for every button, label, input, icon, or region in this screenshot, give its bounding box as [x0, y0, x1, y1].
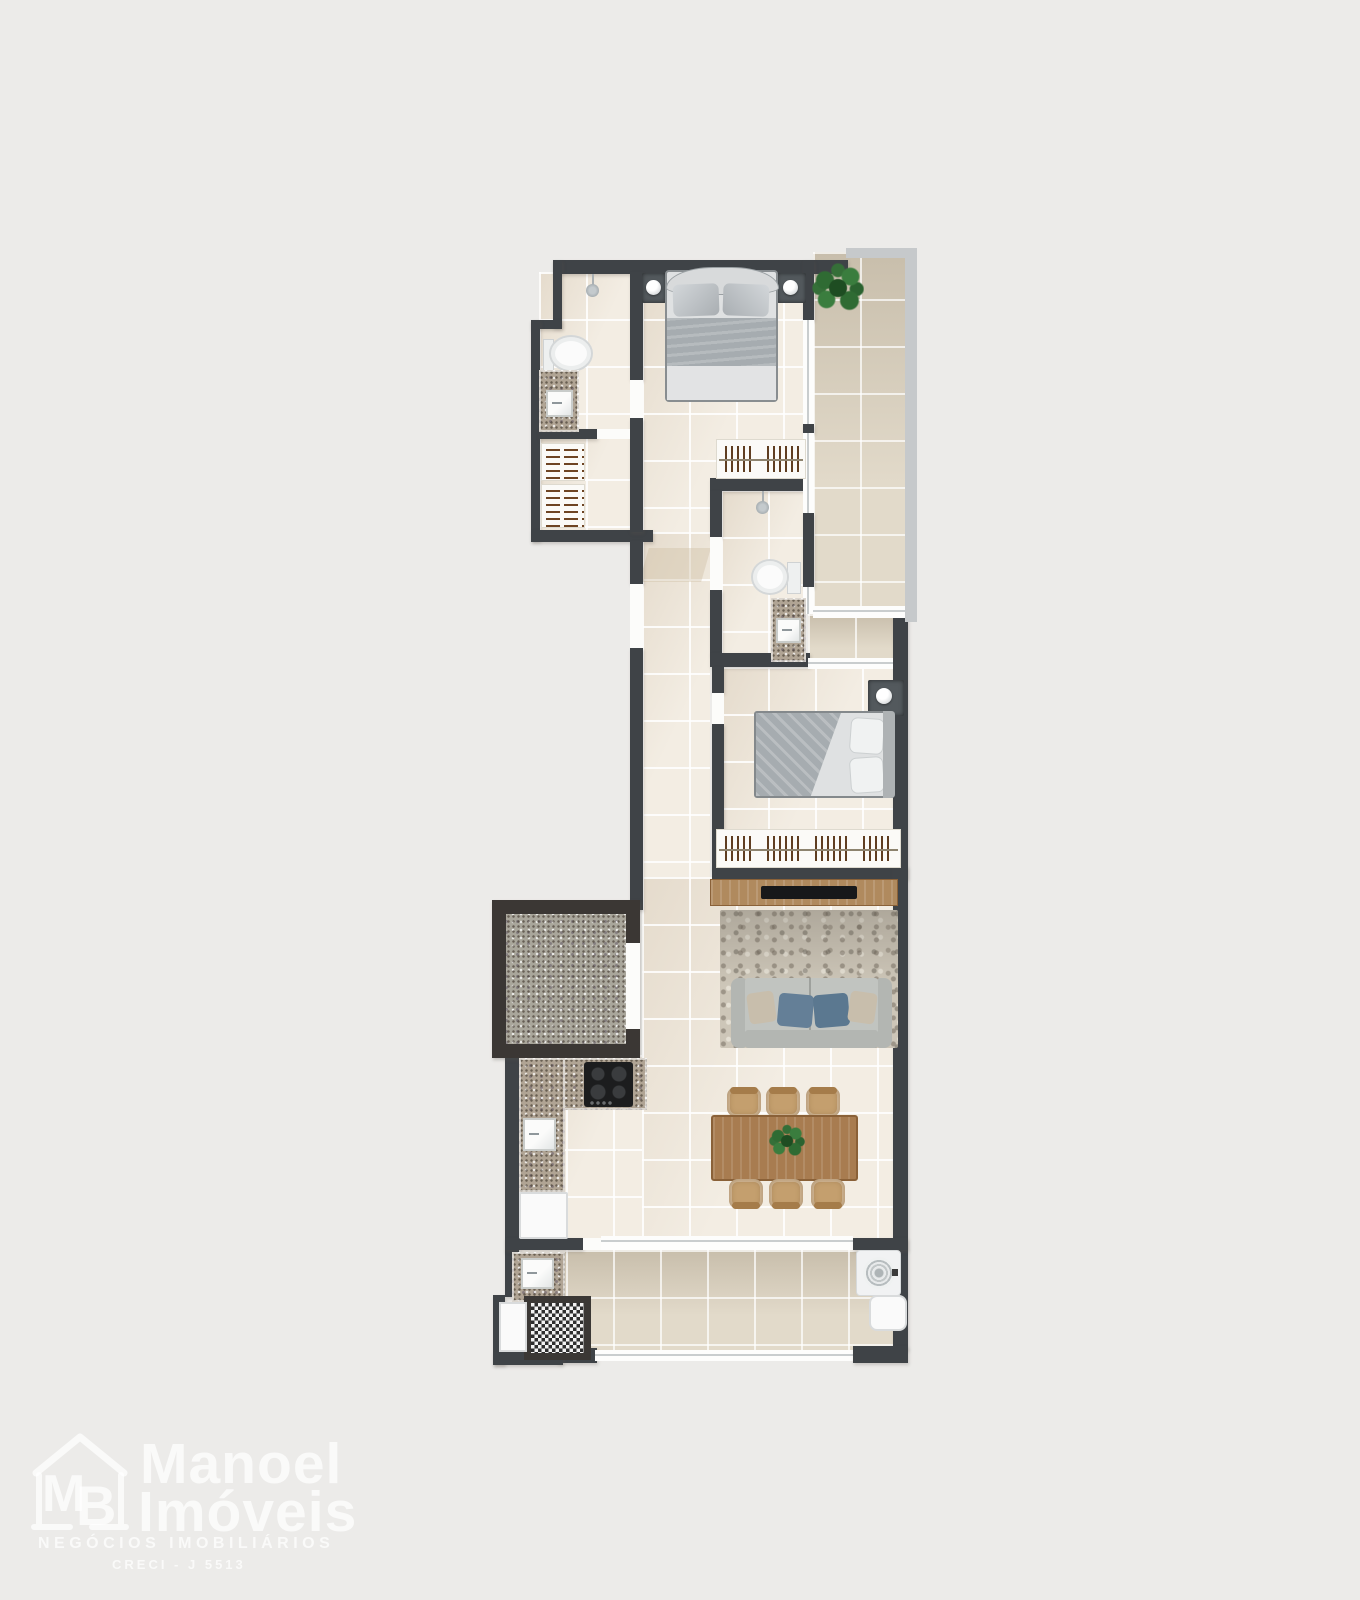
closet-door: [597, 429, 630, 439]
balcony-plant-icon: [812, 262, 864, 314]
bed2-pillow-bottom: [849, 756, 885, 794]
sofa-back: [745, 1030, 878, 1048]
wall-bath2-left-lower: [710, 590, 722, 655]
service-sink: [521, 1258, 554, 1289]
toilet2-tank: [787, 562, 801, 594]
lamp-icon: [876, 688, 892, 704]
sofa-pillow-beige-left: [746, 990, 777, 1024]
wall-suite-left-top: [553, 260, 562, 328]
sofa-pillow-blue-left: [777, 993, 815, 1029]
suite-window-1: [803, 320, 814, 424]
refrigerator-icon: [519, 1192, 568, 1239]
elevator-shaft: [492, 900, 640, 1058]
house-mb-icon: M MB B: [30, 1427, 130, 1535]
wall-service-bottom-right: [853, 1346, 908, 1363]
wall-bath2-left-upper: [710, 491, 722, 537]
sofa-arm-left: [731, 978, 746, 1048]
bed-pillow-right: [722, 283, 769, 317]
rack-rail: [719, 849, 898, 851]
dining-chair: [769, 1179, 803, 1209]
bedroom2-annex-window: [808, 658, 893, 669]
svg-text:B: B: [76, 1474, 116, 1535]
closet-rack-1: [541, 443, 585, 481]
wall-window-col-b: [803, 424, 814, 433]
service-appliance: [499, 1302, 527, 1352]
wall-bath2-top: [710, 478, 810, 491]
brand-tagline: NEGÓCIOS IMOBILIÁRIOS: [38, 1535, 334, 1553]
lamp-icon: [646, 280, 661, 295]
sofa-pillow-beige-right: [847, 990, 878, 1024]
sofa: [731, 978, 892, 1048]
floor-plan-canvas: M MB B Manoel Imóveis NEGÓCIOS IMOBILIÁR…: [0, 0, 1360, 1600]
kitchen-sink: [523, 1118, 556, 1151]
single-bed: [754, 711, 895, 798]
bed-blanket: [667, 318, 776, 366]
service-door: [583, 1238, 601, 1250]
dining-chair: [806, 1087, 840, 1117]
brand-license: CRECI - J 5513: [112, 1557, 246, 1572]
shower-head-icon: [756, 501, 769, 514]
suite-bathroom-door: [630, 380, 643, 418]
wall-left-mid: [630, 648, 643, 910]
tv-console: [710, 879, 898, 906]
wall-entry-stub: [630, 541, 643, 584]
bed-sheet: [667, 366, 776, 400]
entry-door: [630, 584, 643, 648]
hallway-floor: [642, 532, 710, 878]
cooktop-icon: [584, 1062, 633, 1107]
balcony-parapet-top: [846, 248, 917, 258]
washer-drum: [863, 1257, 895, 1289]
bed2-pillow-top: [849, 717, 885, 755]
elevator-shaft-floor: [506, 914, 626, 1044]
wall-left-lower: [505, 1055, 519, 1252]
watermark-logo: M MB B Manoel Imóveis NEGÓCIOS IMOBILIÁR…: [28, 1395, 338, 1585]
balcony-bottom-sill: [813, 606, 905, 618]
lamp-icon: [783, 280, 798, 295]
bed-pillow-left: [672, 283, 719, 317]
dining-chair: [727, 1087, 761, 1117]
washing-machine-icon: [856, 1250, 901, 1296]
sofa-arm-right: [877, 978, 892, 1048]
sofa-pillow-blue-right: [813, 993, 851, 1029]
bathroom2-door: [710, 537, 722, 590]
wall-service-divider-right: [853, 1238, 908, 1250]
bed2-headboard: [883, 711, 895, 798]
double-bed: [665, 270, 778, 402]
vanity1-sink: [546, 390, 573, 417]
vanity2-sink: [776, 618, 801, 643]
wall-bedroom2-left-upper: [712, 667, 724, 693]
service-bottom-window: [595, 1350, 853, 1361]
suite-wardrobe-rack: [716, 439, 806, 479]
closet-rack-2: [541, 484, 585, 528]
wall-bath1-divider-lower: [630, 418, 643, 532]
balcony-parapet-right: [905, 248, 917, 622]
wall-window-col-c: [803, 513, 814, 587]
washer-latch: [892, 1269, 898, 1276]
elevator-door: [626, 943, 640, 1029]
laundry-tank-icon: [869, 1295, 907, 1331]
apartment-floor-plan: [0, 0, 1360, 1600]
toilet-icon: [549, 335, 593, 372]
wall-service-divider-left: [505, 1238, 583, 1250]
dining-chair: [766, 1087, 800, 1117]
service-divider-window: [601, 1236, 853, 1250]
rack-rail: [719, 459, 803, 461]
dining-chair: [811, 1179, 845, 1209]
bedroom2-door: [712, 693, 724, 724]
table-plant-icon: [769, 1124, 805, 1158]
entry-floor-shade: [639, 548, 711, 582]
tv-icon: [761, 886, 857, 899]
utility-shaft: [524, 1296, 591, 1360]
shaft-grate-icon: [531, 1303, 584, 1353]
dining-chair: [729, 1179, 763, 1209]
bedroom2-wardrobe-rack: [716, 829, 901, 868]
toilet-icon: [751, 559, 789, 595]
shower-head-icon: [586, 284, 599, 297]
